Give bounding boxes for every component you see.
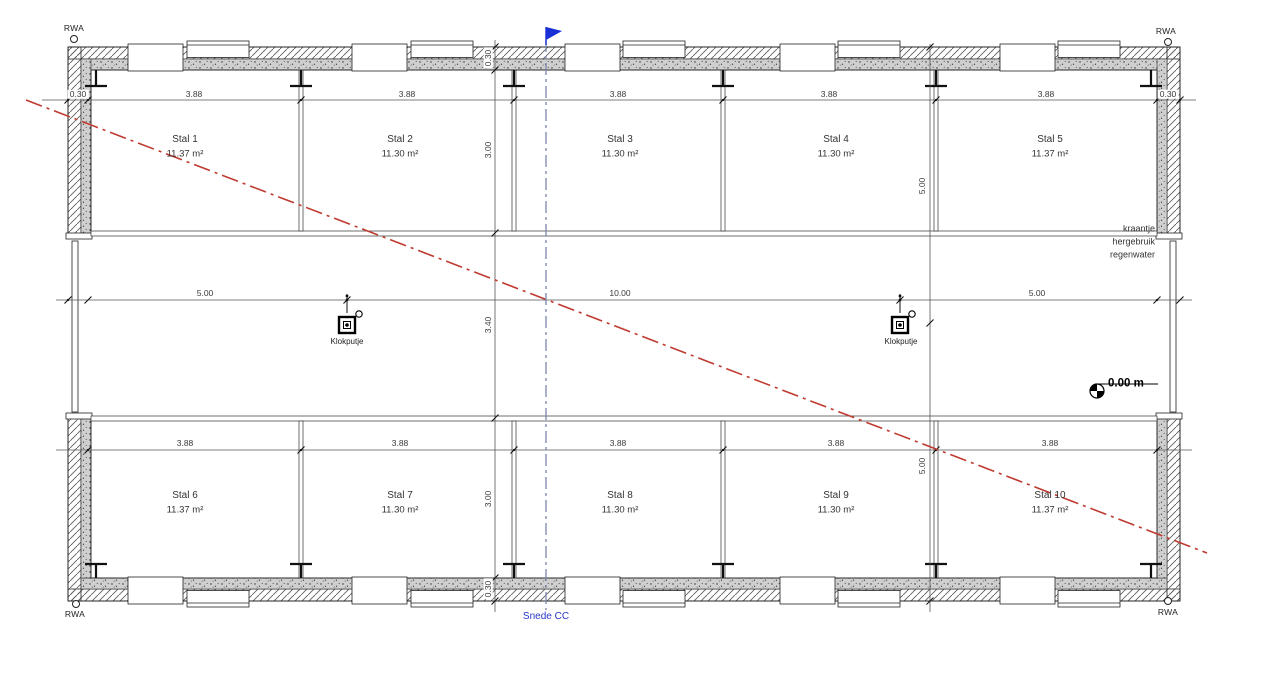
stall-1-name: Stal 1 (172, 135, 198, 145)
dim-corridor-500-left: 5.00 (195, 289, 216, 298)
dim-left-030-top: 0.30 (484, 48, 493, 69)
tap-note-line-3: regenwater (1110, 251, 1155, 260)
klokputje-label-left: Klokputje (331, 338, 364, 346)
rwa-label-bottom-left: RWA (65, 610, 85, 619)
stall-6-name: Stal 6 (172, 491, 198, 501)
klokputje-symbol-left (339, 311, 362, 333)
stall-9-area: 11.30 m² (818, 505, 855, 515)
tap-note-line-1: kraantje (1123, 225, 1155, 234)
dim-bottom-388-4: 3.88 (826, 439, 847, 448)
stall-7-name: Stal 7 (387, 491, 413, 501)
dim-left-300-bottom: 3.00 (484, 489, 493, 510)
floor-plan: RWA RWA RWA RWA Stal 1 11.37 m² Stal 2 1… (0, 0, 1280, 674)
stall-7-area: 11.30 m² (382, 505, 419, 515)
corridor-gate-right (1156, 233, 1185, 419)
section-cut-line-red (26, 100, 1207, 553)
stall-3-name: Stal 3 (607, 135, 633, 145)
dim-top-030-right: 0.30 (1158, 90, 1179, 99)
steel-columns (85, 70, 1162, 578)
dim-top-388-4: 3.88 (819, 90, 840, 99)
dim-corridor-1000: 10.00 (607, 289, 632, 298)
stall-5-name: Stal 5 (1037, 135, 1063, 145)
rwa-label-bottom-right: RWA (1158, 608, 1178, 617)
stall-6-area: 11.37 m² (167, 505, 204, 515)
klokputje-symbol-right (892, 311, 915, 333)
stall-4-area: 11.30 m² (818, 149, 855, 159)
level-marker-label: 0.00 m (1108, 378, 1144, 390)
dim-corridor-500-right: 5.00 (1027, 289, 1048, 298)
dim-right-500-top: 5.00 (918, 176, 927, 197)
stall-front-walls (91, 231, 1157, 421)
dim-bottom-388-2: 3.88 (390, 439, 411, 448)
dim-bottom-388-1: 3.88 (175, 439, 196, 448)
tap-note-line-2: hergebruik (1112, 238, 1155, 247)
dim-left-340: 3.40 (484, 315, 493, 336)
dim-top-388-3: 3.88 (608, 90, 629, 99)
dim-bottom-388-3: 3.88 (608, 439, 629, 448)
stall-5-area: 11.37 m² (1032, 149, 1069, 159)
stall-2-area: 11.30 m² (382, 149, 419, 159)
corridor-gate-left (63, 233, 92, 419)
plan-linework (0, 0, 1280, 674)
stall-10-name: Stal 10 (1034, 491, 1065, 501)
stall-10-area: 11.37 m² (1032, 505, 1069, 515)
stall-8-name: Stal 8 (607, 491, 633, 501)
section-line-cc (546, 27, 562, 610)
dim-left-030-bottom: 0.30 (484, 579, 493, 600)
dim-bottom-388-5: 3.88 (1040, 439, 1061, 448)
klokputje-label-right: Klokputje (885, 338, 918, 346)
rwa-label-top-left: RWA (64, 24, 84, 33)
dim-left-300-top: 3.00 (484, 140, 493, 161)
section-cc-label: Snede CC (523, 612, 569, 622)
rwa-drain-icons (71, 36, 1172, 608)
dim-top-388-1: 3.88 (184, 90, 205, 99)
rwa-label-top-right: RWA (1156, 27, 1176, 36)
stall-8-area: 11.30 m² (602, 505, 639, 515)
stall-partitions (299, 70, 938, 578)
dim-right-500-bottom: 5.00 (918, 456, 927, 477)
dim-top-388-2: 3.88 (397, 90, 418, 99)
dim-top-030-left: 0.30 (68, 90, 89, 99)
dimension-ticks (65, 44, 1184, 605)
stall-4-name: Stal 4 (823, 135, 849, 145)
dimension-lines (42, 40, 1196, 612)
dim-top-388-5: 3.88 (1036, 90, 1057, 99)
stall-3-area: 11.30 m² (602, 149, 639, 159)
stall-9-name: Stal 9 (823, 491, 849, 501)
exterior-walls (68, 47, 1180, 601)
section-flag-icon (546, 27, 562, 40)
stall-2-name: Stal 2 (387, 135, 413, 145)
stall-1-area: 11.37 m² (167, 149, 204, 159)
